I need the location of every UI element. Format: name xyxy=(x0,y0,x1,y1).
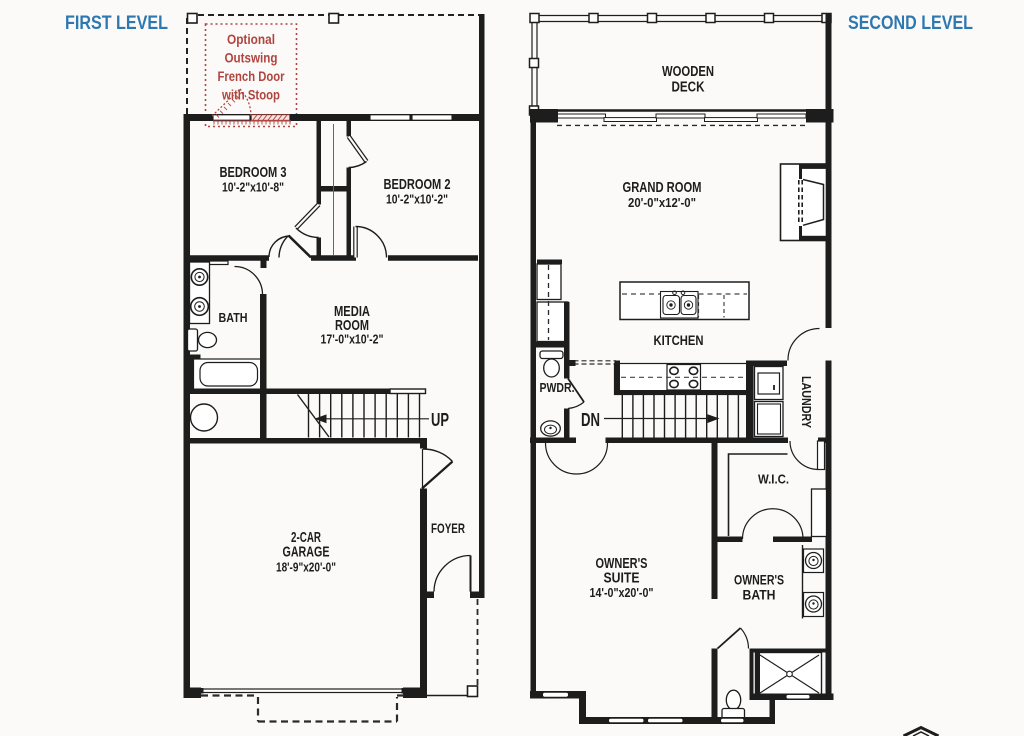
svg-text:10'-2"x10'-2": 10'-2"x10'-2" xyxy=(386,192,448,207)
svg-text:Outswing: Outswing xyxy=(225,50,278,66)
svg-text:SECOND LEVEL: SECOND LEVEL xyxy=(848,13,973,34)
svg-text:DECK: DECK xyxy=(672,80,705,96)
svg-text:18'-9"x20'-0": 18'-9"x20'-0" xyxy=(276,560,336,575)
svg-text:UP: UP xyxy=(431,410,449,430)
svg-text:FIRST LEVEL: FIRST LEVEL xyxy=(65,13,168,34)
svg-text:10'-2"x10'-8": 10'-2"x10'-8" xyxy=(222,180,284,195)
svg-text:FOYER: FOYER xyxy=(431,520,465,536)
svg-text:GRAND ROOM: GRAND ROOM xyxy=(623,179,702,196)
svg-text:PWDR.: PWDR. xyxy=(540,380,575,395)
svg-text:20'-0"x12'-0": 20'-0"x12'-0" xyxy=(628,195,696,210)
svg-text:GARAGE: GARAGE xyxy=(283,544,330,561)
svg-text:LAUNDRY: LAUNDRY xyxy=(799,376,814,428)
svg-text:French Door: French Door xyxy=(218,68,285,84)
svg-text:OWNER'S: OWNER'S xyxy=(734,573,784,588)
svg-text:14'-0"x20'-0": 14'-0"x20'-0" xyxy=(590,585,654,600)
svg-text:DN: DN xyxy=(581,410,600,430)
svg-text:BEDROOM 3: BEDROOM 3 xyxy=(220,164,287,181)
svg-text:W.I.C.: W.I.C. xyxy=(758,473,789,487)
svg-text:Optional: Optional xyxy=(227,31,275,47)
svg-text:WOODEN: WOODEN xyxy=(662,64,714,80)
svg-text:KITCHEN: KITCHEN xyxy=(654,332,704,348)
svg-text:BATH: BATH xyxy=(219,310,248,325)
svg-text:with Stoop: with Stoop xyxy=(221,87,280,103)
svg-text:BATH: BATH xyxy=(743,588,776,603)
svg-text:17'-0"x10'-2": 17'-0"x10'-2" xyxy=(321,332,384,347)
svg-text:BEDROOM 2: BEDROOM 2 xyxy=(384,176,451,193)
